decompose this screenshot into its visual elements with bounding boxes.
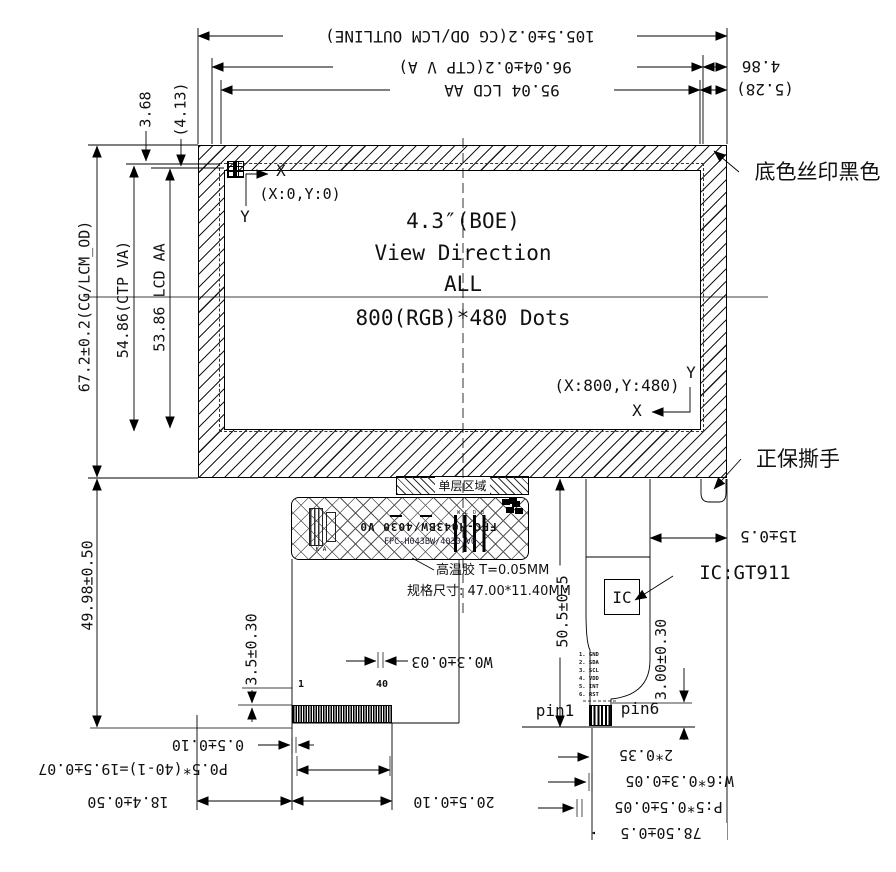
single-layer-strip: 单层区域 bbox=[396, 476, 529, 495]
dim-tear-offset: 15±0.5 bbox=[734, 527, 804, 546]
ctp-pin6-label: pin6 bbox=[612, 699, 668, 719]
ctp-pin1-label: pin1 bbox=[529, 701, 581, 721]
pin-row: 2. SDA bbox=[579, 659, 615, 667]
ic-box-label: IC bbox=[612, 588, 631, 607]
dim-lcd-conn-pitch: P0.5*(40-1)=19.5±0.07 bbox=[8, 759, 258, 778]
single-layer-label: 单层区域 bbox=[435, 477, 489, 494]
dim-ctp-va-height: 54.86(CTP VA) bbox=[114, 232, 133, 367]
dim-aa-top-margin: (4.13) bbox=[172, 82, 191, 138]
dim-cg-right-margin: 4.86 bbox=[729, 57, 793, 76]
ctp-pin-list: 1. GND 2. SDA 3. SCL 4. VDD 5. INT 6. RS… bbox=[579, 651, 615, 699]
dim-lcd-conn-margin: 0.5±0.10 bbox=[158, 735, 258, 754]
pin-row: 4. VDD bbox=[579, 675, 615, 683]
pin-row: 3. SCL bbox=[579, 667, 615, 675]
dim-ctp-finger-pitch: P:5*0.5±0.05 bbox=[586, 797, 751, 816]
ctp-va-dashed-boundary bbox=[219, 163, 704, 432]
dim-lcd-aa-height: 53.86 LCD AA bbox=[151, 233, 170, 363]
ic-part-note: IC:GT911 bbox=[675, 562, 815, 584]
lcd-fpc-block bbox=[291, 497, 529, 560]
dim-ctp-edge-margin: 2*0.35 bbox=[601, 745, 691, 764]
tear-handle-notch bbox=[701, 479, 726, 502]
pin-row: 1. GND bbox=[579, 651, 615, 659]
touch-ic-box: IC bbox=[604, 579, 640, 615]
fpc-component-icon bbox=[309, 508, 323, 546]
tear-handle-note: 正保撕手 bbox=[743, 446, 853, 472]
dim-ctp-tail-offset: 78.50±0.5 bbox=[595, 823, 727, 842]
fpc-dash-mark bbox=[390, 515, 402, 517]
lcd-module-mechanical-drawing: 单层区域 IC 1. GND 2. SDA 3. SCL 4. VDD 5. I… bbox=[0, 0, 896, 872]
lcd-pin-last-label: 40 bbox=[372, 678, 392, 692]
dim-aa-right-margin: (5.28) bbox=[729, 80, 801, 99]
dim-ctp-finger-length: 3.00±0.30 bbox=[652, 612, 671, 707]
dim-lcd-finger-width: W0.3±0.03 bbox=[397, 652, 507, 671]
silk-print-note: 底色丝印黑色 bbox=[739, 159, 896, 185]
pixel-grid-icon bbox=[227, 161, 244, 178]
dim-fpc-drop: 49.98±0.50 bbox=[79, 531, 98, 641]
ic-leader bbox=[635, 576, 673, 600]
dim-stiffener: 3.5±0.30 bbox=[243, 610, 262, 690]
dim-cg-outline-width: 105.5±0.2(CG OD/LCM OUTLINE) bbox=[283, 26, 637, 46]
dim-lcd-conn-offset: 18.4±0.50 bbox=[58, 792, 198, 811]
lcd-connector-fingers bbox=[292, 705, 392, 723]
dim-lcd-aa-width: 95.04 LCD AA bbox=[390, 81, 614, 100]
spec-note: 规格尺寸: 47.00*11.40MM bbox=[407, 583, 627, 600]
pin-row: 5. INT bbox=[579, 683, 615, 691]
dim-cg-outline-height: 67.2±0.2(CG/LCM_OD) bbox=[76, 207, 95, 407]
dim-cg-top-margin: 3.68 bbox=[137, 90, 156, 130]
dim-ctp-fpc-length: 50.5±0.5 bbox=[554, 566, 573, 658]
fpc-parts-cluster bbox=[502, 499, 510, 505]
lcd-pin-first-label: 1 bbox=[295, 678, 307, 692]
fpc-footprint-icon bbox=[454, 515, 488, 552]
dim-ctp-va-width: 96.04±0.2(CTP V A) bbox=[333, 58, 637, 77]
dim-ctp-finger-width: W:6*0.3±0.05 bbox=[597, 771, 762, 790]
pin-row: 6. RST bbox=[579, 691, 615, 699]
ctp-connector-fingers bbox=[589, 705, 612, 726]
fpc-dash-mark bbox=[420, 515, 432, 517]
fpc-component-icon bbox=[326, 512, 336, 542]
dim-lcd-conn-width: 20.5±0.10 bbox=[395, 792, 513, 811]
tape-note: 高温胶 T=0.05MM bbox=[436, 562, 626, 579]
